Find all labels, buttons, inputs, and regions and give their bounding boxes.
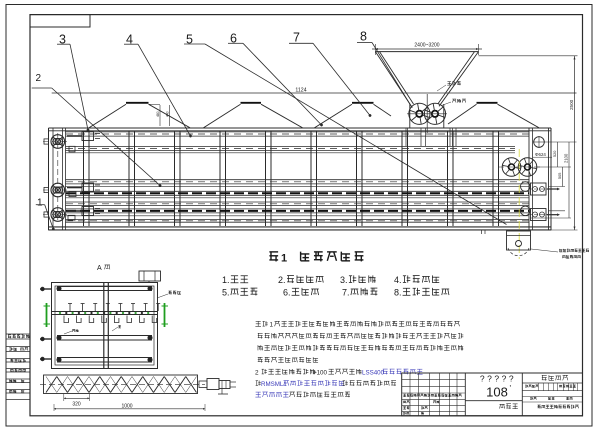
svg-text:RMSML1: RMSML1 — [261, 381, 287, 388]
svg-text:6.: 6. — [283, 288, 291, 298]
svg-text:LSS400: LSS400 — [362, 369, 385, 376]
svg-text:108: 108 — [486, 385, 508, 400]
svg-text:1: 1 — [270, 322, 274, 329]
svg-text:>100: >100 — [313, 369, 327, 376]
svg-text:7: 7 — [293, 31, 300, 45]
svg-text:7.: 7. — [342, 288, 350, 298]
svg-text:5: 5 — [186, 33, 193, 47]
svg-text:1000: 1000 — [121, 403, 132, 409]
svg-text:1124: 1124 — [295, 88, 306, 94]
svg-text:8.: 8. — [394, 288, 402, 298]
svg-text:1: 1 — [37, 198, 43, 209]
svg-text:A: A — [97, 265, 102, 272]
svg-text:3.: 3. — [340, 275, 348, 285]
svg-text:2400~3200: 2400~3200 — [414, 43, 439, 49]
svg-text:480: 480 — [156, 111, 160, 117]
svg-text:1: 1 — [281, 253, 287, 265]
svg-text:320: 320 — [72, 402, 81, 408]
svg-text:4.: 4. — [394, 275, 402, 285]
svg-text:440: 440 — [166, 111, 170, 117]
svg-text:8: 8 — [360, 30, 367, 44]
svg-text:2: 2 — [255, 369, 259, 376]
svg-text:?????: ????? — [480, 374, 516, 384]
svg-text:1.: 1. — [222, 275, 230, 285]
svg-text:2100: 2100 — [563, 153, 568, 163]
svg-text:520: 520 — [553, 151, 557, 157]
svg-text:5.: 5. — [222, 288, 230, 298]
svg-text:Φ624: Φ624 — [535, 152, 546, 157]
svg-text:505: 505 — [558, 173, 562, 179]
svg-text:2: 2 — [36, 73, 42, 84]
svg-text:2500: 2500 — [569, 99, 574, 110]
svg-text:2.: 2. — [278, 275, 286, 285]
